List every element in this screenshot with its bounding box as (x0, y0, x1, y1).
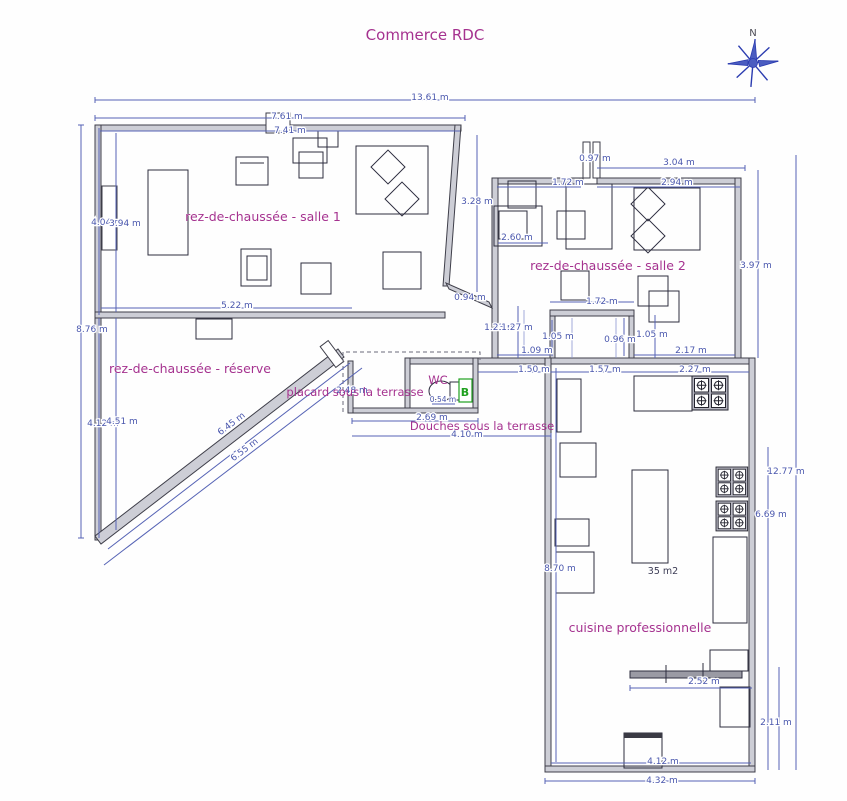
dim-label-top-outer: 7.61 m (271, 112, 303, 122)
counter (720, 687, 750, 727)
room-label-reserve: rez-de-chaussée - réserve (109, 361, 271, 376)
dim-label-kitchen-counter: 2.52 m (688, 677, 720, 687)
page-title: Commerce RDC (366, 26, 485, 44)
table (383, 252, 421, 289)
dim-label-top-total: 13.61 m (411, 93, 448, 103)
dim-label-left-lower-b: 4.51 m (106, 417, 138, 427)
dim-label-salle2-top-right: 3.04 m (663, 158, 695, 168)
dim-label-passage-right: 2.17 m (675, 346, 707, 356)
counter-bar (630, 671, 742, 678)
room-label-salle2: rez-de-chaussée - salle 2 (530, 258, 686, 273)
dim-label-salle2-door: 0.97 m (579, 154, 611, 164)
dim-label-salle1-width: 7.41 m (274, 126, 306, 136)
table (148, 170, 188, 255)
dim-label-kitchen-top-left: 1.57 m (589, 365, 621, 375)
wall-salle1-right (443, 125, 461, 286)
dim-label-wc-fixture: 0.54 m (430, 395, 456, 404)
counter (557, 379, 581, 432)
chair-angled (385, 182, 419, 216)
chair (508, 181, 536, 208)
room-label-salle1: rez-de-chaussée - salle 1 (185, 209, 341, 224)
chair (561, 271, 589, 300)
dim-label-kitchen-bottom-inner: 4.12 m (647, 757, 679, 767)
boiler-label: B (461, 386, 469, 399)
wall-reserve-left (95, 318, 101, 540)
dim-label-salle1-door: 0.94 m (454, 293, 486, 303)
chair (247, 256, 267, 280)
dim-label-corridor-b: 1.27 m (501, 323, 533, 333)
dim-label-left-total: 8.76 m (76, 325, 108, 335)
dim-label-vestibule-top: 1.72 m (586, 297, 618, 307)
floor-plan-svg: Commerce RDC N (0, 0, 847, 801)
chair-angled (631, 187, 665, 221)
room-label-douches: Douches sous la terrasse (410, 419, 554, 433)
dim-label-right-lower: 2.11 m (760, 718, 792, 728)
chair-angled (631, 219, 665, 253)
counter (710, 650, 748, 671)
chair (301, 263, 331, 294)
dim-label-vestibule-inner: 0.96 m (604, 335, 636, 345)
dim-label-vestibule-right: 1.05 m (636, 330, 668, 340)
cabinet (318, 131, 338, 147)
dim-label-vestibule-left: 1.05 m (542, 332, 574, 342)
dim-label-passage-left: 1.09 m (521, 346, 553, 356)
chair-angled (371, 150, 405, 184)
room-label-wc: WC (428, 373, 447, 387)
compass-north-label: N (749, 28, 756, 39)
counter (555, 519, 589, 546)
dimension-labels: 13.61 m 7.61 m 7.41 m 4.04 m 3.94 m 8.76… (76, 93, 805, 786)
cabinet (196, 319, 232, 339)
stove-burners-icon (716, 501, 748, 531)
wall-wc-bottom (348, 408, 478, 413)
counter (560, 443, 596, 477)
dim-label-salle1-right: 3.28 m (461, 197, 493, 207)
wall-corridor (405, 358, 755, 364)
wall-reserve-diagonal (95, 349, 344, 544)
dim-label-kitchen-left: 8.70 m (544, 564, 576, 574)
wall-vestibule-top (550, 310, 634, 316)
chair (299, 152, 323, 178)
table-large (634, 188, 700, 250)
dim-label-right-total: 12.77 m (767, 467, 804, 477)
stove-burners-icon (716, 467, 748, 497)
room-area-label: 35 m2 (648, 566, 678, 577)
wall-wc-right (473, 358, 478, 413)
dim-label-kitchen-bottom-outer: 4.32 m (646, 776, 678, 786)
room-label-cuisine: cuisine professionnelle (569, 620, 712, 635)
compass-rose: N (726, 28, 780, 89)
chair (293, 138, 327, 163)
room-labels: rez-de-chaussée - salle 1 rez-de-chaussé… (109, 209, 712, 635)
stove-burners-icon (692, 376, 728, 410)
dim-label-kitchen-right: 6.69 m (755, 510, 787, 520)
cabinet (713, 537, 747, 623)
dim-label-salle2-right: 3.97 m (740, 261, 772, 271)
dim-label-salle2-desk: 2.60 m (501, 233, 533, 243)
dim-label-salle2-top-left: 1.72 m (552, 178, 584, 188)
chair (236, 157, 268, 185)
dim-label-kitchen-top-right: 2.27 m (679, 365, 711, 375)
counter (634, 376, 692, 411)
dim-label-left-upper-b: 3.94 m (109, 219, 141, 229)
compass-star-icon (726, 37, 780, 89)
room-label-placard: placard sous la terrasse (286, 385, 423, 399)
dim-label-salle1-bottom: 5.22 m (221, 301, 253, 311)
prep-table (632, 470, 668, 563)
wall-salle1-bottom (95, 312, 445, 318)
dim-label-douches-door: 1.50 m (518, 365, 550, 375)
dim-label-salle2-top-right-inner: 2.94 m (661, 178, 693, 188)
chair (557, 211, 585, 239)
floor-plan-canvas: Commerce RDC N (0, 0, 847, 801)
